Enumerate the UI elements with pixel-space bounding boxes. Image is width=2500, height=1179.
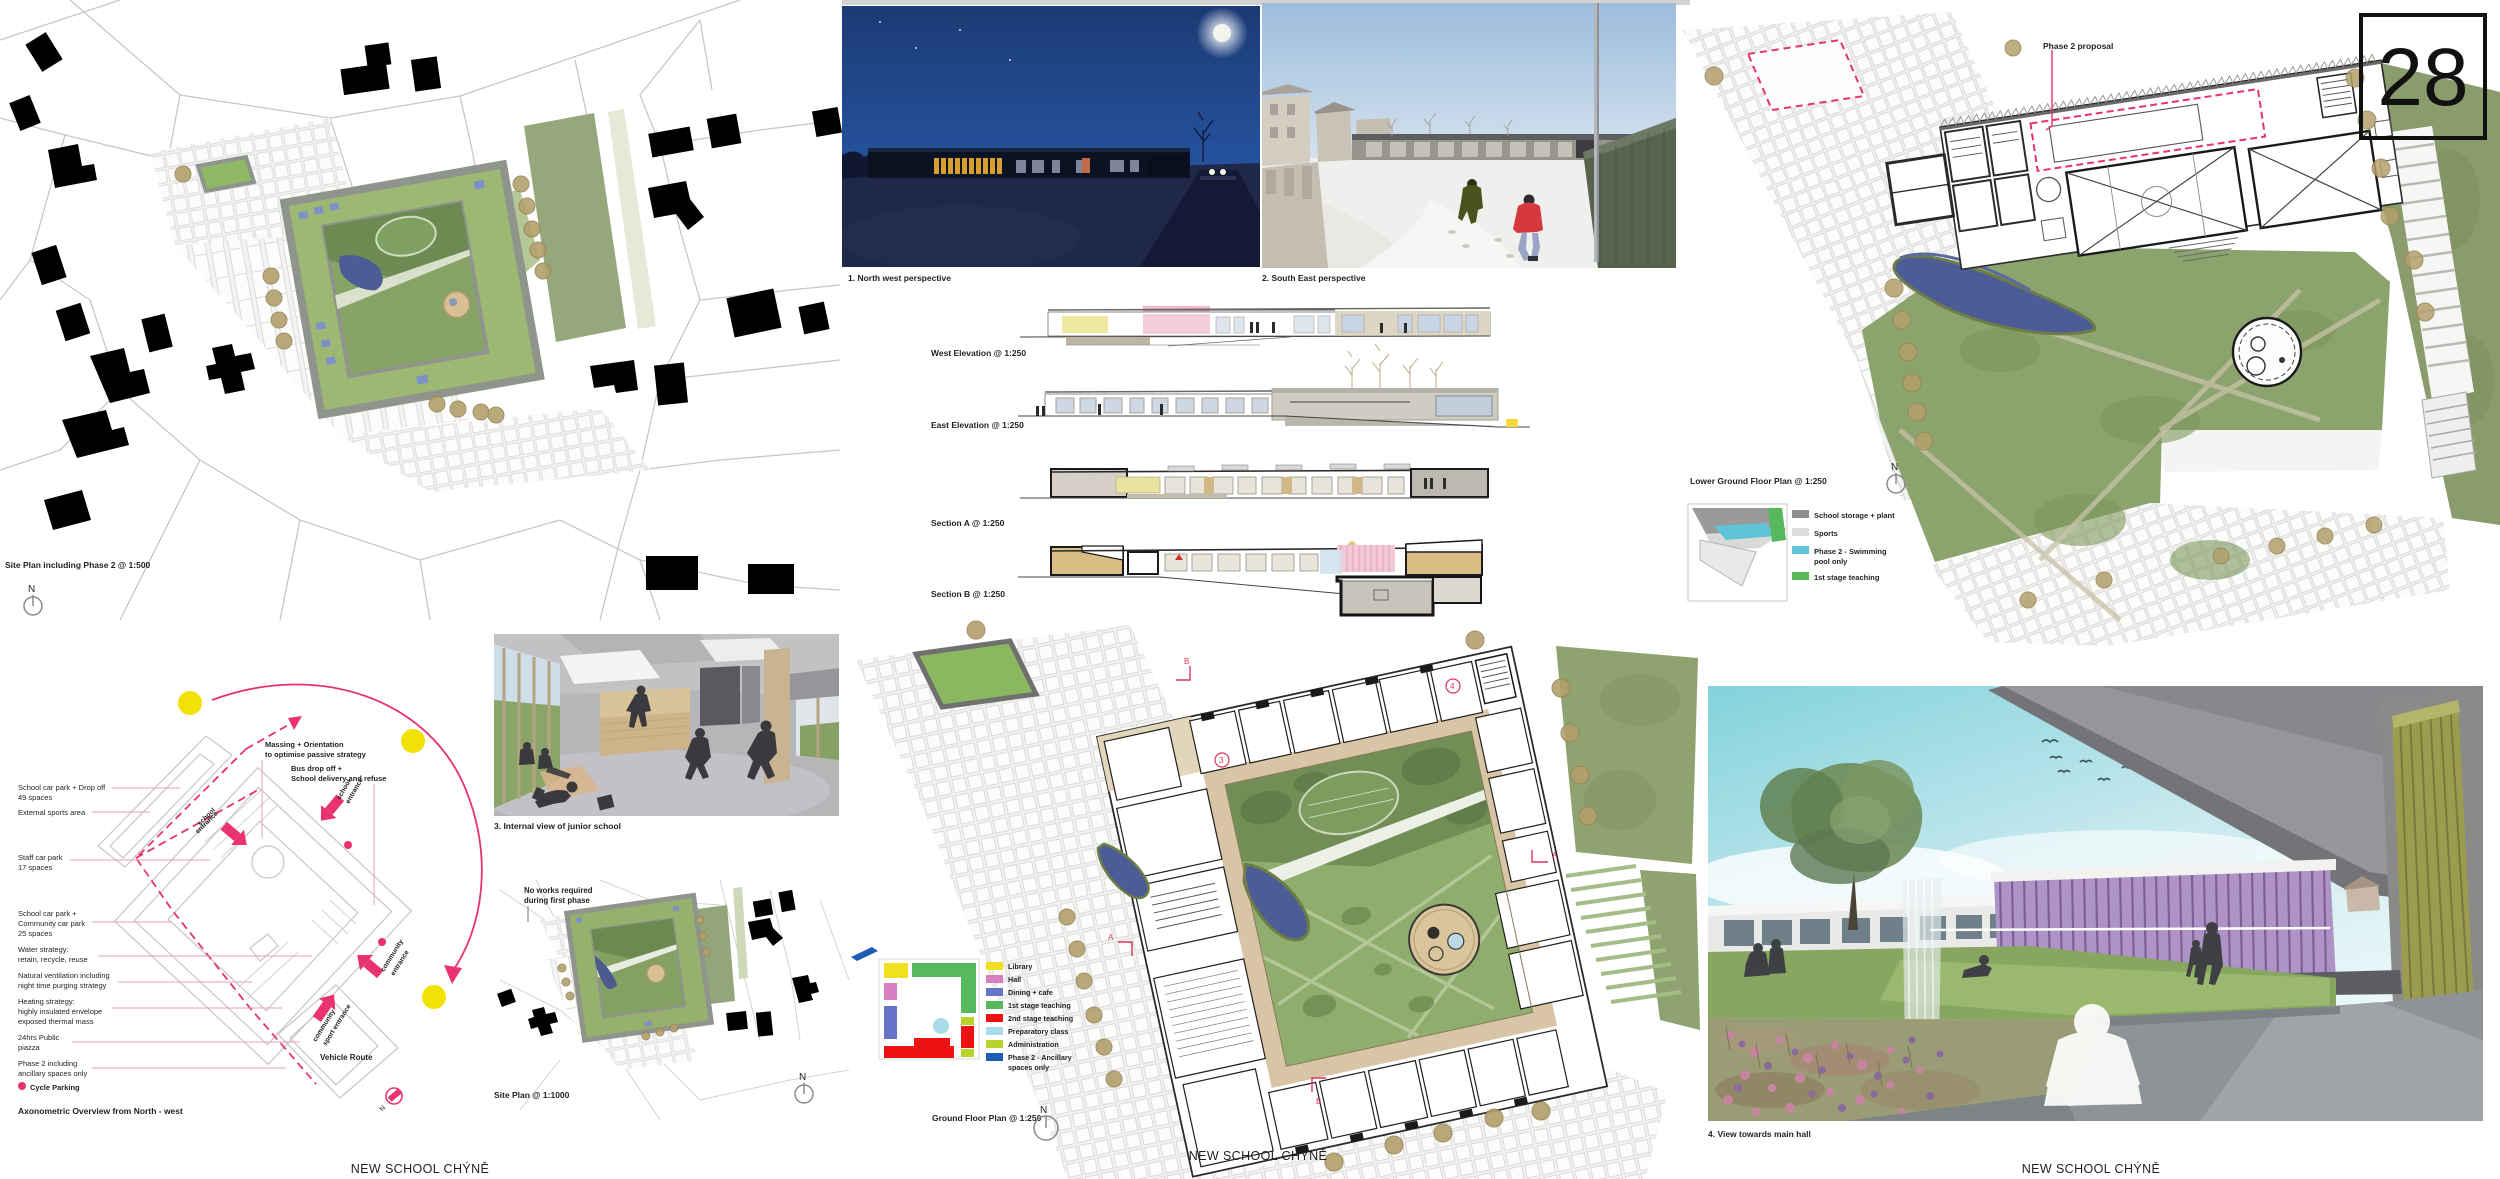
svg-text:3. Internal view of junior sch: 3. Internal view of junior school [494,821,621,831]
svg-text:B: B [1316,1097,1321,1106]
svg-text:ancillary spaces only: ancillary spaces only [18,1069,87,1078]
svg-text:N: N [28,584,35,595]
svg-text:night time purging strategy: night time purging strategy [18,981,107,990]
svg-text:Phase 2 proposal: Phase 2 proposal [2043,41,2113,51]
svg-text:Lower Ground Floor Plan @ 1:25: Lower Ground Floor Plan @ 1:250 [1690,476,1827,486]
svg-text:B: B [1184,657,1189,666]
svg-text:during first phase: during first phase [524,896,591,905]
svg-text:Community car park: Community car park [18,919,85,928]
svg-text:Site Plan @ 1:1000: Site Plan @ 1:1000 [494,1090,570,1100]
svg-text:Bus drop off +: Bus drop off + [291,764,343,773]
svg-text:Dining + cafe: Dining + cafe [1008,988,1053,997]
svg-text:retain, recycle, reuse: retain, recycle, reuse [18,955,88,964]
svg-text:to optimise passive strategy: to optimise passive strategy [265,750,367,759]
svg-text:School car park +: School car park + [18,909,77,918]
svg-text:1st stage teaching: 1st stage teaching [1814,573,1880,582]
svg-text:Sports: Sports [1814,529,1838,538]
svg-text:Cycle Parking: Cycle Parking [30,1083,80,1092]
svg-text:N: N [799,1072,806,1083]
svg-text:Section B @ 1:250: Section B @ 1:250 [931,589,1005,599]
svg-text:piazza: piazza [18,1043,41,1052]
svg-text:N: N [1891,462,1898,473]
svg-text:4: 4 [1450,682,1455,691]
svg-text:2. South East perspective: 2. South East perspective [1262,273,1366,283]
svg-text:East Elevation @ 1:250: East Elevation @ 1:250 [931,420,1024,430]
svg-text:Phase 2 - Ancillary: Phase 2 - Ancillary [1008,1053,1072,1062]
svg-text:Natural ventilation including: Natural ventilation including [18,971,110,980]
svg-text:Site Plan including Phase 2 @: Site Plan including Phase 2 @ 1:500 [5,560,151,570]
svg-text:spaces only: spaces only [1008,1063,1049,1072]
svg-text:Library: Library [1008,962,1032,971]
svg-text:exposed thermal mass: exposed thermal mass [18,1017,94,1026]
svg-text:School storage + plant: School storage + plant [1814,511,1895,520]
svg-text:Axonometric Overview from Nort: Axonometric Overview from North - west [18,1106,183,1116]
svg-text:A: A [1108,933,1114,942]
svg-text:Section A @ 1:250: Section A @ 1:250 [931,518,1005,528]
svg-text:Preparatory class: Preparatory class [1008,1027,1068,1036]
svg-text:1st stage teaching: 1st stage teaching [1008,1001,1071,1010]
svg-text:pool only: pool only [1814,557,1848,566]
svg-text:1. North west perspective: 1. North west perspective [848,273,951,283]
svg-text:17 spaces: 17 spaces [18,863,52,872]
svg-text:28: 28 [2377,32,2468,123]
svg-text:3: 3 [1219,756,1224,765]
svg-text:Heating strategy:: Heating strategy: [18,997,75,1006]
svg-text:Hall: Hall [1008,975,1021,984]
svg-text:Phase 2 including: Phase 2 including [18,1059,77,1068]
svg-text:No works required: No works required [524,886,593,895]
svg-text:School delivery and refuse: School delivery and refuse [291,774,386,783]
svg-text:NEW SCHOOL CHÝNĚ: NEW SCHOOL CHÝNĚ [2022,1161,2161,1176]
svg-text:Water strategy:: Water strategy: [18,945,69,954]
svg-text:Vehicle Route: Vehicle Route [320,1053,373,1062]
svg-text:NEW SCHOOL CHÝNĚ: NEW SCHOOL CHÝNĚ [1189,1148,1328,1163]
svg-text:N: N [1040,1105,1047,1116]
svg-text:2nd stage teaching: 2nd stage teaching [1008,1014,1073,1023]
svg-text:25 spaces: 25 spaces [18,929,52,938]
svg-text:A: A [1552,851,1558,860]
svg-text:School car park + Drop off: School car park + Drop off [18,783,106,792]
svg-text:Massing + Orientation: Massing + Orientation [265,740,344,749]
svg-text:Staff car park: Staff car park [18,853,63,862]
svg-text:highly insulated envelope: highly insulated envelope [18,1007,102,1016]
svg-text:24hrs Public: 24hrs Public [18,1033,60,1042]
svg-text:Phase 2 - Swimming: Phase 2 - Swimming [1814,547,1887,556]
svg-text:External sports area: External sports area [18,808,86,817]
svg-text:Ground Floor Plan @ 1:250: Ground Floor Plan @ 1:250 [932,1113,1042,1123]
svg-text:49 spaces: 49 spaces [18,793,52,802]
svg-text:NEW SCHOOL CHÝNĚ: NEW SCHOOL CHÝNĚ [351,1161,490,1176]
svg-text:4. View towards main hall: 4. View towards main hall [1708,1129,1811,1139]
svg-text:Administration: Administration [1008,1040,1059,1049]
svg-text:West Elevation @ 1:250: West Elevation @ 1:250 [931,348,1026,358]
